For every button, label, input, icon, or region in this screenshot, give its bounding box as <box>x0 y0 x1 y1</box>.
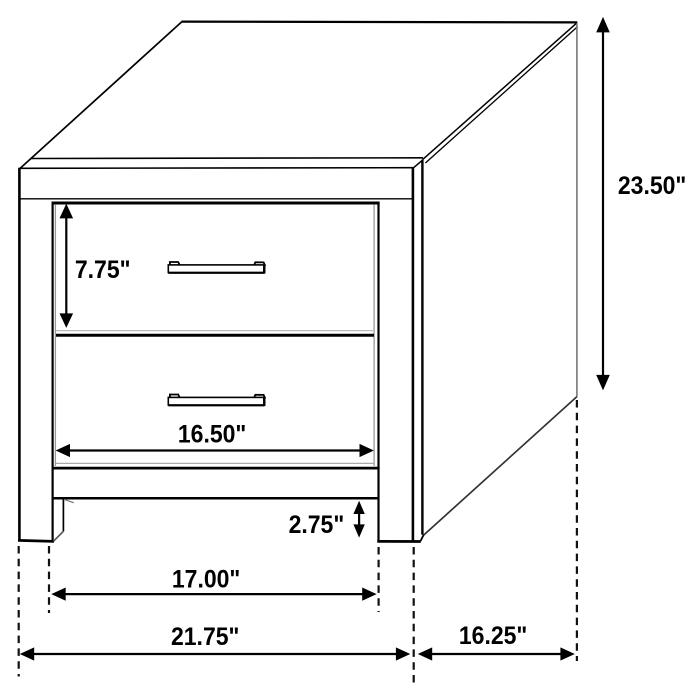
svg-text:23.50": 23.50" <box>618 172 686 200</box>
svg-text:16.50": 16.50" <box>178 421 246 449</box>
svg-text:16.25": 16.25" <box>459 622 527 650</box>
svg-text:17.00": 17.00" <box>172 566 240 594</box>
svg-text:2.75": 2.75" <box>289 511 345 539</box>
svg-text:7.75": 7.75" <box>75 256 131 284</box>
svg-text:21.75": 21.75" <box>171 623 239 651</box>
